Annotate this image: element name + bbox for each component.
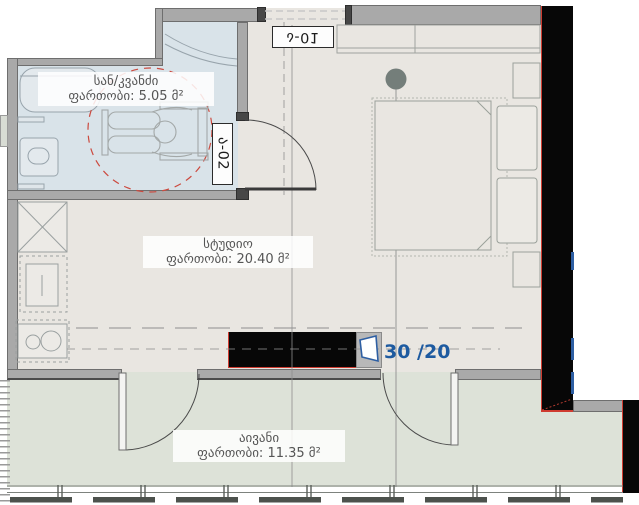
kitchen-fixtures [16, 202, 69, 362]
balcony-railing [7, 485, 623, 503]
wall-detail-diagonal [542, 399, 572, 410]
bathroom-label: სან/კვანძი ფართობი: 5.05 მ² [38, 72, 214, 106]
bed [372, 98, 537, 256]
studio-label: სტუდიო ფართობი: 20.40 მ² [143, 236, 313, 268]
bathroom-area: ფართობი: 5.05 მ² [38, 89, 214, 104]
studio-area: ფართობი: 20.40 მ² [143, 252, 313, 267]
door-tag-bathroom-label: ა-02 [215, 137, 231, 170]
balcony-area: ფართობი: 11.35 მ² [173, 446, 345, 461]
door-tag-entry-label: ა-01 [286, 29, 319, 45]
door-tag-bathroom: ა-02 [212, 123, 233, 185]
floor-plan: ა-01 ა-02 სან/კვანძი ფართობი: 5.05 მ² სტ… [0, 0, 639, 505]
bathroom-door [245, 120, 316, 190]
ceiling-light-icon [386, 69, 407, 90]
vent-marker [360, 336, 378, 361]
entry-threshold [265, 11, 345, 19]
bathroom-name: სან/კვანძი [38, 74, 214, 89]
balcony-label: აივანი ფართობი: 11.35 მ² [173, 430, 345, 462]
ratio-label: 30 /20 [384, 341, 450, 363]
studio-name: სტუდიო [143, 237, 313, 252]
door-tag-entry: ა-01 [272, 26, 334, 48]
balcony-name: აივანი [173, 431, 345, 446]
nightstand [513, 63, 540, 287]
closet [337, 25, 540, 53]
balcony-door-right [383, 373, 458, 445]
